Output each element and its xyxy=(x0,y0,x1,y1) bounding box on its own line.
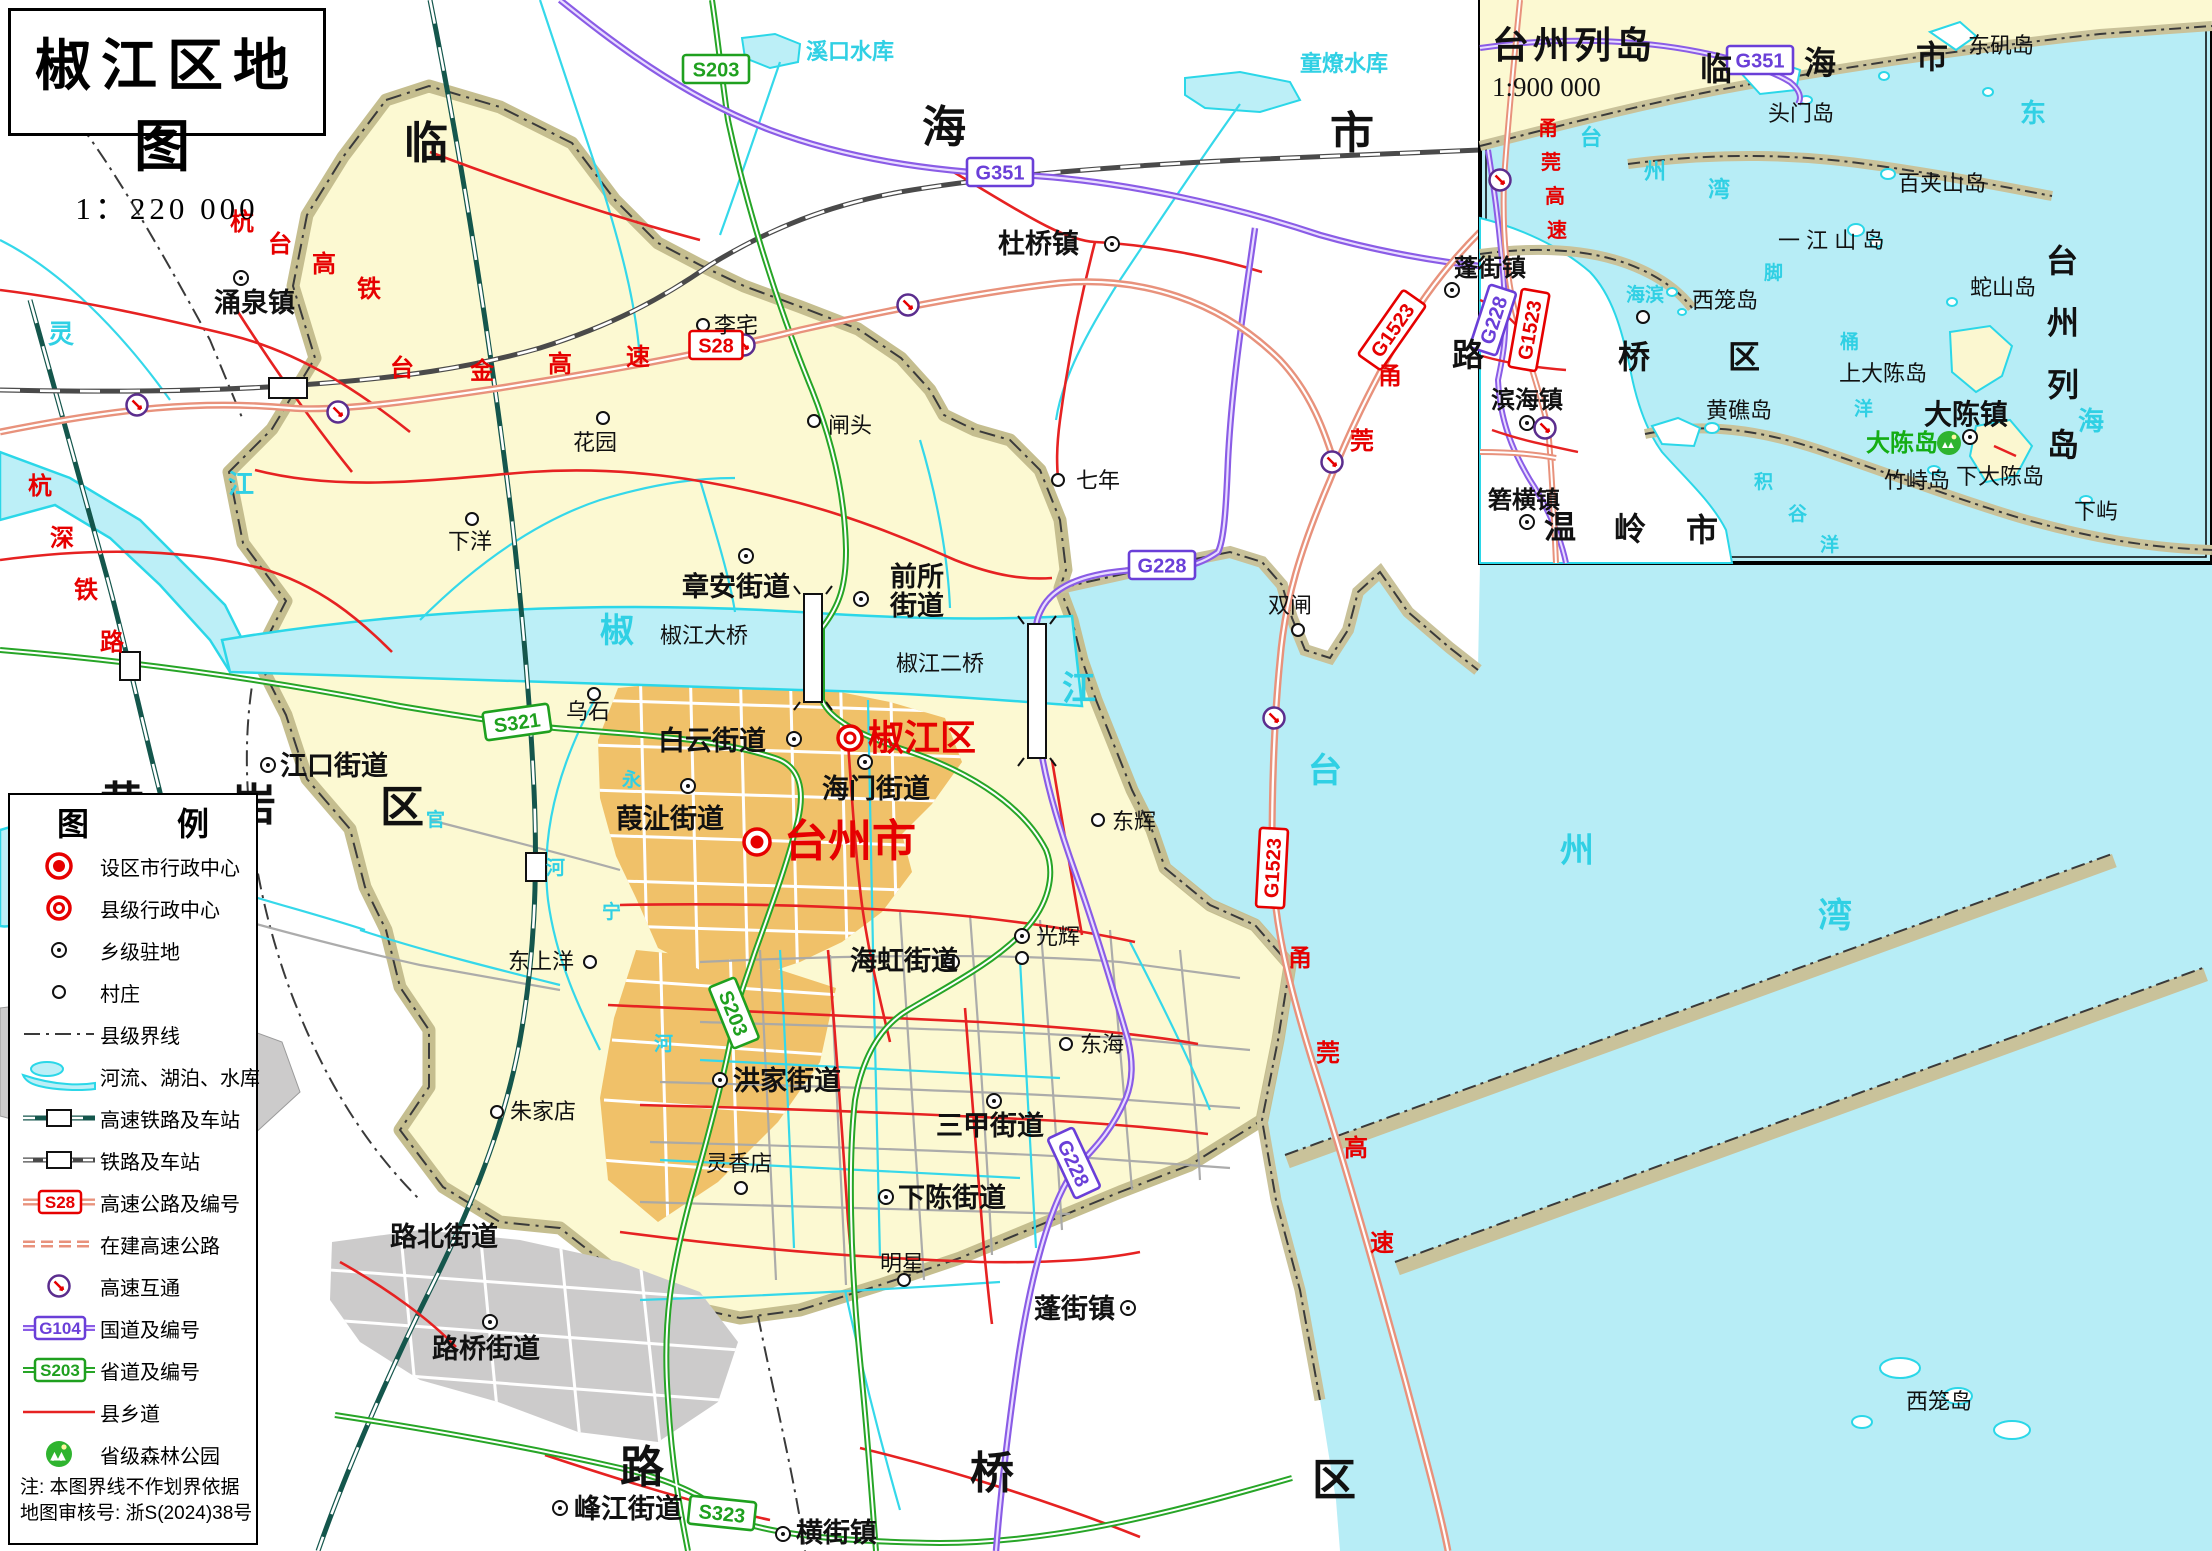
map-label-州: 州 xyxy=(1560,832,1594,870)
map-label-河: 河 xyxy=(654,1033,673,1055)
interchange-icon xyxy=(1535,418,1556,439)
map-label-大陈镇: 大陈镇 xyxy=(1924,398,2008,430)
map-label-涌泉镇: 涌泉镇 xyxy=(214,287,295,318)
map-canvas: S28S321S203S203S323G351G228G228G1523G152… xyxy=(0,0,2212,1551)
map-label-速: 速 xyxy=(1547,219,1567,242)
map-label-高: 高 xyxy=(312,250,336,278)
map-label-葭沚街道: 葭沚街道 xyxy=(616,803,724,834)
vill-marker xyxy=(1292,624,1304,636)
map-label-高: 高 xyxy=(1545,184,1565,208)
vill-marker xyxy=(1092,814,1104,826)
vill-marker xyxy=(584,956,596,968)
map-label-童燎水库: 童燎水库 xyxy=(1300,51,1388,76)
interchange-icon xyxy=(328,402,349,423)
vill-marker xyxy=(808,415,820,427)
map-label-花园: 花园 xyxy=(573,430,617,455)
map-label-台: 台 xyxy=(268,230,292,258)
map-label-台: 台 xyxy=(390,354,414,382)
town-marker xyxy=(879,1190,893,1204)
vill-marker xyxy=(491,1106,503,1118)
map-label-甬: 甬 xyxy=(1378,363,1402,390)
map-label-莞: 莞 xyxy=(1541,151,1561,174)
map-label-洋: 洋 xyxy=(1820,533,1839,556)
town-marker xyxy=(787,732,801,746)
city-marker xyxy=(744,829,770,855)
map-label-脚: 脚 xyxy=(1764,262,1783,284)
legend-label: 设区市行政中心 xyxy=(100,852,240,881)
map-label-市: 市 xyxy=(1330,109,1374,158)
map-label-西笼岛: 西笼岛 xyxy=(1906,1389,1972,1414)
map-label-湾: 湾 xyxy=(1708,177,1730,202)
map-label-三甲街道: 三甲街道 xyxy=(936,1110,1044,1141)
map-label-七年: 七年 xyxy=(1076,468,1120,493)
town-marker xyxy=(1520,416,1534,430)
map-label-闸头: 闸头 xyxy=(828,413,872,438)
interchange-icon xyxy=(1490,170,1511,191)
map-label-海: 海 xyxy=(2078,406,2104,436)
county-marker-icon xyxy=(18,891,100,925)
town-marker xyxy=(1963,430,1977,444)
map-label-箬横镇: 箬横镇 xyxy=(1488,486,1560,514)
map-label-桶: 桶 xyxy=(1840,330,1859,353)
map-label-杜桥镇: 杜桥镇 xyxy=(998,229,1079,259)
map-label-临: 临 xyxy=(1700,51,1732,87)
legend-row-water: 河流、湖泊、水库 xyxy=(10,1055,256,1097)
map-label-河: 河 xyxy=(546,857,565,879)
road-badge-G1523: G1523 xyxy=(1256,828,1288,908)
map-label-州: 州 xyxy=(1644,159,1666,184)
map-label-蛇山岛: 蛇山岛 xyxy=(1970,275,2036,300)
map-label-甬: 甬 xyxy=(1288,945,1312,972)
provincial-road-icon: S203 xyxy=(18,1355,100,1385)
county-marker xyxy=(838,726,862,750)
svg-text:G351: G351 xyxy=(976,163,1025,185)
map-label-海虹街道: 海虹街道 xyxy=(850,945,958,976)
map-label-竹峙岛: 竹峙岛 xyxy=(1884,468,1950,493)
map-label-东辉: 东辉 xyxy=(1112,809,1156,834)
legend-row-rail: 铁路及车站 xyxy=(10,1139,256,1181)
map-label-街道: 街道 xyxy=(889,590,944,621)
map-label-市: 市 xyxy=(1916,39,1948,75)
map-label-路北街道: 路北街道 xyxy=(390,1221,498,1252)
legend-row-boundary: 县级界线 xyxy=(10,1013,256,1055)
map-label-路: 路 xyxy=(1452,337,1485,373)
map-label-温: 温 xyxy=(1544,509,1576,545)
title-box: 椒江区地图 1：220 000 xyxy=(8,8,326,136)
map-label-路: 路 xyxy=(620,1443,665,1492)
map-label-海: 海 xyxy=(1804,45,1836,81)
map-label-甬: 甬 xyxy=(1538,118,1558,140)
map-label-蓬街镇: 蓬街镇 xyxy=(1454,254,1526,282)
map-label-岛: 岛 xyxy=(2047,427,2079,463)
legend-row-forest: 省级森林公园 xyxy=(10,1433,256,1475)
legend-label: 在建高速公路 xyxy=(100,1230,220,1259)
legend-label: 省级森林公园 xyxy=(100,1440,220,1469)
map-label-宁: 宁 xyxy=(602,900,621,923)
town-marker xyxy=(681,779,695,793)
rail-icon xyxy=(18,1149,100,1171)
map-label-李宅: 李宅 xyxy=(714,313,758,338)
map-label-台: 台 xyxy=(1580,125,1602,150)
vill-marker xyxy=(1016,952,1028,964)
map-label-铁: 铁 xyxy=(357,276,381,303)
legend-row-village: 村庄 xyxy=(10,971,256,1013)
svg-text:G228: G228 xyxy=(1138,556,1187,578)
vill-marker xyxy=(466,513,478,525)
map-label-桥: 桥 xyxy=(1618,339,1650,375)
map-label-东上洋: 东上洋 xyxy=(508,949,574,974)
map-label-头门岛: 头门岛 xyxy=(1768,101,1834,126)
town-marker xyxy=(234,271,248,285)
water-icon xyxy=(18,1059,100,1093)
map-label-峰江街道: 峰江街道 xyxy=(574,1493,682,1524)
forest-park-icon xyxy=(18,1438,100,1470)
map-label-前所: 前所 xyxy=(890,561,944,592)
map-label-积: 积 xyxy=(1754,471,1773,493)
city-marker-icon xyxy=(18,849,100,883)
road-badge-S203: S203 xyxy=(683,55,749,83)
town-marker xyxy=(776,1527,790,1541)
legend-row-countyroad: 县乡道 xyxy=(10,1391,256,1433)
map-label-下洋: 下洋 xyxy=(448,529,492,554)
map-label-深: 深 xyxy=(50,525,74,552)
svg-text:G1523: G1523 xyxy=(1261,838,1286,899)
inset-title: 台州列岛 xyxy=(1492,25,1656,67)
railway-station xyxy=(526,853,546,881)
legend-row-hsr: 高速铁路及车站 xyxy=(10,1097,256,1139)
legend-row-county: 县级行政中心 xyxy=(10,887,256,929)
map-label-永: 永 xyxy=(621,768,642,791)
legend-row-national: G104 国道及编号 xyxy=(10,1307,256,1349)
map-label-列: 列 xyxy=(2047,367,2079,403)
map-label-高: 高 xyxy=(1344,1134,1368,1162)
town-marker xyxy=(553,1501,567,1515)
map-label-区: 区 xyxy=(380,783,424,832)
map-label-双闸: 双闸 xyxy=(1268,593,1312,618)
town-marker xyxy=(1520,515,1534,529)
legend-label: 高速互通 xyxy=(100,1272,180,1301)
expressway-icon: S28 xyxy=(18,1187,100,1217)
map-label-路: 路 xyxy=(100,628,125,656)
legend-label: 国道及编号 xyxy=(100,1314,200,1343)
svg-text:S203: S203 xyxy=(40,1361,80,1380)
map-label-杭: 杭 xyxy=(28,472,52,500)
map-label-路桥街道: 路桥街道 xyxy=(432,1333,540,1364)
map-label-东海: 东海 xyxy=(1080,1032,1124,1057)
map-label-桥: 桥 xyxy=(970,1449,1014,1498)
map-label-莞: 莞 xyxy=(1316,1040,1340,1067)
svg-text:G104: G104 xyxy=(39,1319,81,1338)
legend-row-provincial: S203 省道及编号 xyxy=(10,1349,256,1391)
legend-note-2: 地图审核号: 浙S(2024)38号 xyxy=(10,1501,256,1527)
map-label-下陈街道: 下陈街道 xyxy=(898,1182,1006,1213)
map-scale: 1：220 000 xyxy=(11,183,323,228)
map-label-江: 江 xyxy=(1062,670,1096,708)
railway-station xyxy=(269,378,307,398)
national-road-icon: G104 xyxy=(18,1313,100,1343)
vill-marker xyxy=(597,412,609,424)
map-label-蓬街镇: 蓬街镇 xyxy=(1034,1294,1115,1324)
road-badge-G351: G351 xyxy=(967,158,1033,186)
map-label-灵香店: 灵香店 xyxy=(706,1151,772,1176)
town-marker xyxy=(261,758,275,772)
map-label-海滨: 海滨 xyxy=(1626,283,1664,306)
map-label-高: 高 xyxy=(548,350,572,378)
map-label-东矶岛: 东矶岛 xyxy=(1968,33,2034,58)
map-label-乌石: 乌石 xyxy=(566,699,610,724)
county-road-icon xyxy=(18,1407,100,1417)
interchange-icon xyxy=(898,295,919,316)
map-label-莞: 莞 xyxy=(1350,428,1374,455)
map-label-东: 东 xyxy=(2020,98,2046,128)
road-badge-S323: S323 xyxy=(688,1496,757,1531)
map-label-横街镇: 横街镇 xyxy=(796,1518,877,1548)
svg-text:S203: S203 xyxy=(693,60,740,82)
legend: 图 例 设区市行政中心 县级行政中心 乡级驻地 村庄 县级界线 河流、湖泊、水库 xyxy=(8,793,258,1545)
vill-marker xyxy=(1052,474,1064,486)
map-label-速: 速 xyxy=(626,344,650,371)
town-marker xyxy=(1105,237,1119,251)
legend-label: 高速铁路及车站 xyxy=(100,1104,240,1133)
map-label-椒: 椒 xyxy=(600,612,634,650)
map-label-黄礁岛: 黄礁岛 xyxy=(1706,398,1772,423)
map-label-岭: 岭 xyxy=(1614,511,1646,547)
forest-park-icon xyxy=(1937,431,1961,455)
legend-label: 铁路及车站 xyxy=(100,1146,200,1175)
town-marker xyxy=(739,549,753,563)
map-label-金: 金 xyxy=(469,357,495,385)
vill-marker xyxy=(697,319,709,331)
map-label-椒江区: 椒江区 xyxy=(868,718,976,758)
hsr-icon xyxy=(18,1107,100,1129)
map-label-海门街道: 海门街道 xyxy=(822,773,930,804)
town-marker-icon xyxy=(18,937,100,963)
town-marker xyxy=(854,592,868,606)
map-label-一 江 山 岛: 一 江 山 岛 xyxy=(1778,228,1884,253)
town-marker xyxy=(1015,929,1029,943)
map-label-上大陈岛: 上大陈岛 xyxy=(1839,361,1927,386)
map-screenshot: S28S321S203S203S323G351G228G228G1523G152… xyxy=(0,0,2212,1551)
map-label-下大陈岛: 下大陈岛 xyxy=(1956,464,2044,489)
legend-title: 图 例 xyxy=(10,799,256,845)
legend-label: 县级行政中心 xyxy=(100,894,220,923)
map-label-台州市: 台州市 xyxy=(784,817,916,866)
map-label-灵: 灵 xyxy=(48,319,74,349)
town-marker xyxy=(713,1073,727,1087)
map-label-章安街道: 章安街道 xyxy=(682,571,790,602)
county-boundary-icon xyxy=(18,1029,100,1039)
vill-marker xyxy=(1060,1038,1072,1050)
map-label-西笼岛: 西笼岛 xyxy=(1692,288,1758,313)
map-label-江口街道: 江口街道 xyxy=(280,750,388,781)
svg-text:S28: S28 xyxy=(45,1193,75,1212)
map-label-滨海镇: 滨海镇 xyxy=(1491,386,1563,414)
svg-text:G351: G351 xyxy=(1736,51,1785,73)
vill-marker xyxy=(735,1182,747,1194)
map-label-椒江二桥: 椒江二桥 xyxy=(896,651,984,676)
legend-row-interchange: 高速互通 xyxy=(10,1265,256,1307)
road-badge-G351: G351 xyxy=(1727,46,1793,74)
village-marker-icon xyxy=(18,980,100,1004)
map-label-光辉: 光辉 xyxy=(1036,924,1080,949)
legend-note-1: 注: 本图界线不作划界依据 xyxy=(10,1475,256,1501)
map-label-江: 江 xyxy=(228,469,254,499)
legend-row-expressway: S28 高速公路及编号 xyxy=(10,1181,256,1223)
legend-label: 乡级驻地 xyxy=(100,936,180,965)
map-label-台: 台 xyxy=(1308,752,1342,790)
map-title: 椒江区地图 xyxy=(11,21,323,183)
map-label-州: 州 xyxy=(2047,305,2079,341)
interchange-icon xyxy=(1264,708,1285,729)
map-label-下屿: 下屿 xyxy=(2074,499,2118,524)
map-label-洋: 洋 xyxy=(1854,397,1873,420)
legend-label: 高速公路及编号 xyxy=(100,1188,240,1217)
map-label-区: 区 xyxy=(1312,1456,1356,1505)
legend-label: 县级界线 xyxy=(100,1020,180,1049)
map-label-官: 官 xyxy=(426,808,445,831)
vill-marker xyxy=(1637,311,1649,323)
map-label-白云街道: 白云街道 xyxy=(658,725,766,756)
interchange-icon xyxy=(127,395,148,416)
svg-text:S28: S28 xyxy=(698,336,734,358)
interchange-icon xyxy=(18,1271,100,1301)
map-label-台: 台 xyxy=(2046,243,2078,279)
map-label-海: 海 xyxy=(922,103,966,152)
town-marker xyxy=(987,1094,1001,1108)
town-marker xyxy=(1121,1301,1135,1315)
railway-station xyxy=(120,652,140,680)
map-label-明星: 明星 xyxy=(880,1251,924,1276)
map-label-市: 市 xyxy=(1686,512,1718,548)
map-label-溪口水库: 溪口水库 xyxy=(806,39,894,64)
map-label-铁: 铁 xyxy=(74,577,98,604)
town-marker xyxy=(483,1315,497,1329)
map-label-百夹山岛: 百夹山岛 xyxy=(1898,171,1986,196)
expressway-under-construction-icon xyxy=(18,1237,100,1251)
map-label-速: 速 xyxy=(1370,1230,1394,1257)
map-label-朱家店: 朱家店 xyxy=(510,1099,576,1124)
map-label-洪家街道: 洪家街道 xyxy=(733,1065,841,1096)
map-label-椒江大桥: 椒江大桥 xyxy=(660,623,748,648)
inset-scale: 1:900 000 xyxy=(1492,72,1601,102)
map-label-临: 临 xyxy=(404,119,448,168)
legend-row-town: 乡级驻地 xyxy=(10,929,256,971)
legend-label: 村庄 xyxy=(100,978,140,1007)
legend-row-expressway-uc: 在建高速公路 xyxy=(10,1223,256,1265)
road-badge-G228: G228 xyxy=(1129,551,1195,579)
legend-label: 县乡道 xyxy=(100,1398,160,1427)
legend-row-city: 设区市行政中心 xyxy=(10,845,256,887)
town-marker xyxy=(1445,283,1459,297)
map-label-谷: 谷 xyxy=(1788,503,1808,525)
legend-label: 河流、湖泊、水库 xyxy=(100,1062,260,1091)
map-label-湾: 湾 xyxy=(1818,896,1852,935)
legend-label: 省道及编号 xyxy=(100,1356,200,1385)
map-label-大陈岛: 大陈岛 xyxy=(1866,429,1938,457)
map-label-区: 区 xyxy=(1728,339,1760,375)
interchange-icon xyxy=(1322,452,1343,473)
